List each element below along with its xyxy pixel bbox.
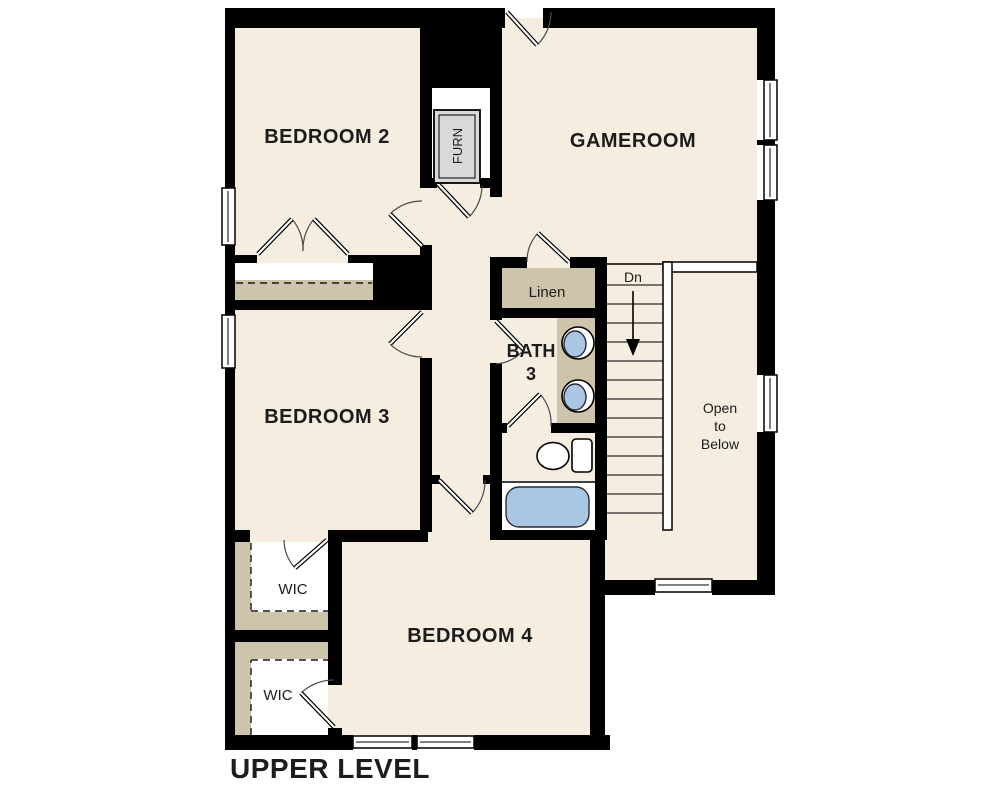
furnace-unit: FURN (434, 110, 480, 183)
chase-void (425, 28, 493, 88)
window-bedroom3 (222, 315, 235, 368)
window-gameroom-lower (764, 145, 777, 200)
bedroom4-label: BEDROOM 4 (407, 625, 533, 647)
furnace-label: FURN (450, 128, 465, 164)
stairs-dn-label: Dn (624, 269, 642, 285)
window-open-below-right (764, 375, 777, 432)
open-below-label-line2: to (714, 418, 726, 434)
bath3-label-line1: BATH (507, 341, 556, 361)
wic-upper-label: WIC (278, 581, 307, 598)
plan-title: UPPER LEVEL (230, 753, 430, 784)
wic-lower-label: WIC (263, 687, 292, 704)
window-open-below-bottom (655, 579, 712, 592)
linen-label: Linen (529, 284, 566, 301)
vanity-sink-1 (562, 327, 594, 359)
window-bedroom4-left (353, 736, 412, 748)
open-below-label-line1: Open (703, 400, 737, 416)
window-gameroom-upper (764, 80, 777, 140)
floor-plan-page: FURN BEDROOM 2 GAMEROOM BEDROOM 3 BEDROO… (0, 0, 1000, 800)
window-bedroom4-right (417, 736, 474, 748)
window-bedroom2 (222, 188, 235, 245)
bedroom2-closet-shelf (235, 280, 373, 302)
bedroom2-label: BEDROOM 2 (264, 126, 390, 148)
open-below-label-line3: Below (701, 436, 740, 452)
bathtub (502, 481, 595, 530)
bath3-label-line2: 3 (526, 364, 536, 384)
gameroom-label: GAMEROOM (570, 130, 696, 152)
bedroom3-label: BEDROOM 3 (264, 406, 390, 428)
wic-upper-shelf-bottom (235, 612, 328, 630)
vanity-sink-2 (562, 380, 594, 412)
wic-lower-shelf-top (235, 642, 328, 659)
floor-plan-drawing: FURN BEDROOM 2 GAMEROOM BEDROOM 3 BEDROO… (0, 0, 1000, 800)
